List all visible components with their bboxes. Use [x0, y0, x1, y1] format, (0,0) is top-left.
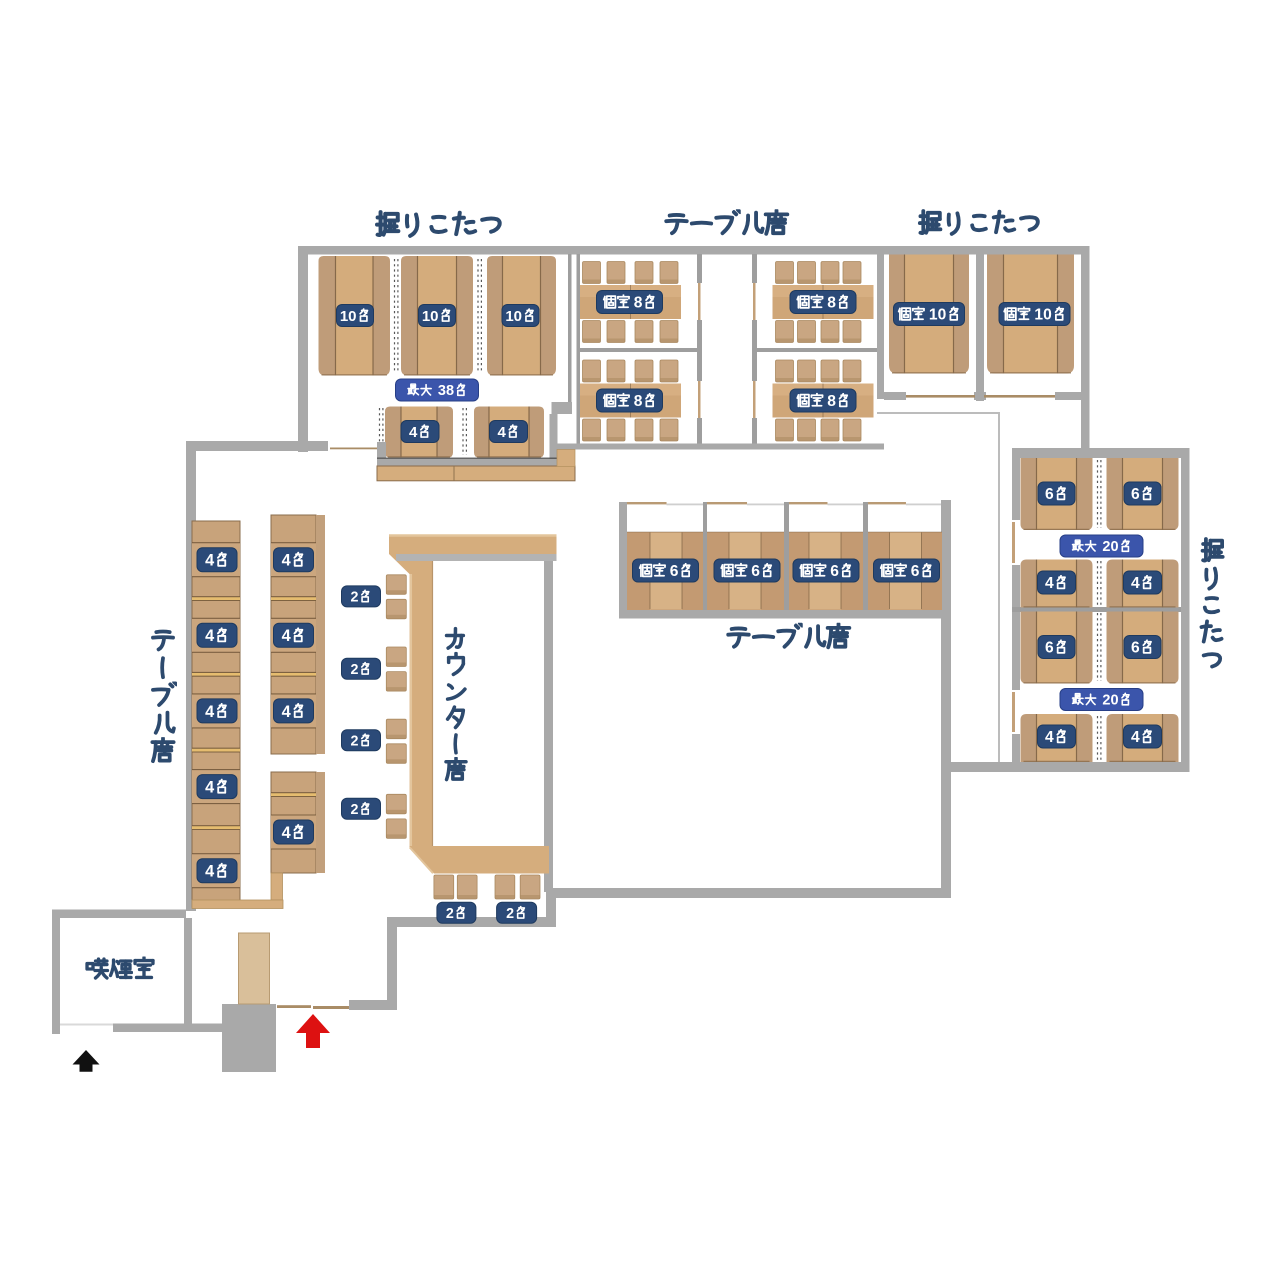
svg-text:8: 8	[634, 295, 643, 312]
svg-text:20: 20	[1102, 539, 1118, 555]
svg-text:4: 4	[282, 627, 291, 645]
svg-text:8: 8	[827, 393, 836, 410]
svg-text:8: 8	[634, 393, 643, 410]
svg-text:4: 4	[205, 779, 214, 797]
svg-text:2: 2	[351, 590, 359, 606]
svg-text:6: 6	[911, 563, 920, 580]
svg-text:10: 10	[929, 307, 947, 324]
svg-text:4: 4	[282, 703, 291, 721]
svg-text:38: 38	[438, 383, 454, 399]
svg-text:6: 6	[1045, 640, 1054, 657]
svg-text:2: 2	[351, 662, 359, 678]
svg-text:4: 4	[205, 627, 214, 645]
svg-text:10: 10	[422, 308, 439, 325]
svg-text:4: 4	[1045, 575, 1054, 592]
svg-text:2: 2	[351, 802, 359, 818]
svg-text:6: 6	[1045, 486, 1054, 503]
svg-text:6: 6	[670, 563, 679, 580]
svg-text:10: 10	[1034, 307, 1052, 324]
svg-text:8: 8	[827, 295, 836, 312]
svg-text:10: 10	[505, 308, 522, 325]
svg-text:4: 4	[205, 863, 214, 881]
svg-text:4: 4	[498, 424, 507, 441]
svg-text:4: 4	[1131, 575, 1140, 592]
svg-text:2: 2	[446, 906, 454, 922]
svg-text:4: 4	[282, 824, 291, 842]
svg-text:4: 4	[409, 424, 418, 441]
svg-text:4: 4	[1131, 729, 1140, 746]
svg-text:2: 2	[506, 906, 514, 922]
svg-text:6: 6	[830, 563, 839, 580]
svg-text:6: 6	[1131, 486, 1140, 503]
svg-text:4: 4	[205, 552, 214, 570]
svg-text:4: 4	[282, 552, 291, 570]
svg-text:4: 4	[1045, 729, 1054, 746]
svg-text:4: 4	[205, 703, 214, 721]
svg-text:10: 10	[340, 308, 357, 325]
svg-text:2: 2	[351, 733, 359, 749]
svg-text:6: 6	[1131, 640, 1140, 657]
svg-text:20: 20	[1102, 693, 1118, 709]
svg-text:6: 6	[751, 563, 760, 580]
